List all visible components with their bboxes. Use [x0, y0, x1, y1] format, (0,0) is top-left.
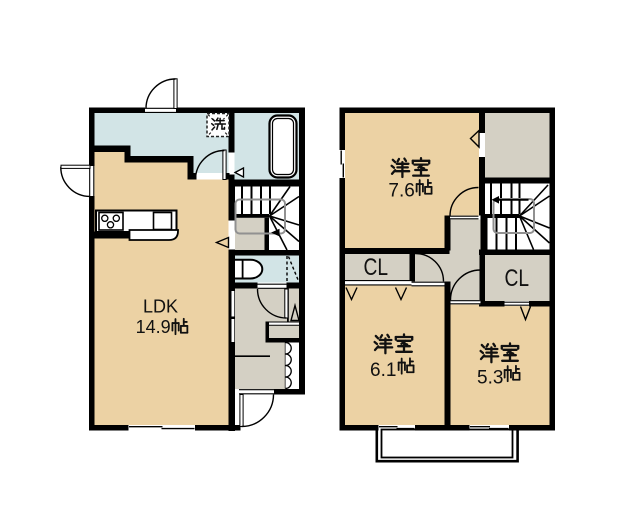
- svg-text:LDK: LDK: [143, 296, 178, 316]
- svg-text:5.3: 5.3: [477, 368, 503, 389]
- svg-text:14.9: 14.9: [136, 317, 171, 337]
- svg-text:6.1: 6.1: [370, 360, 396, 381]
- svg-text:CL: CL: [505, 264, 530, 292]
- svg-text:CL: CL: [364, 253, 389, 281]
- svg-text:7.6: 7.6: [388, 180, 414, 201]
